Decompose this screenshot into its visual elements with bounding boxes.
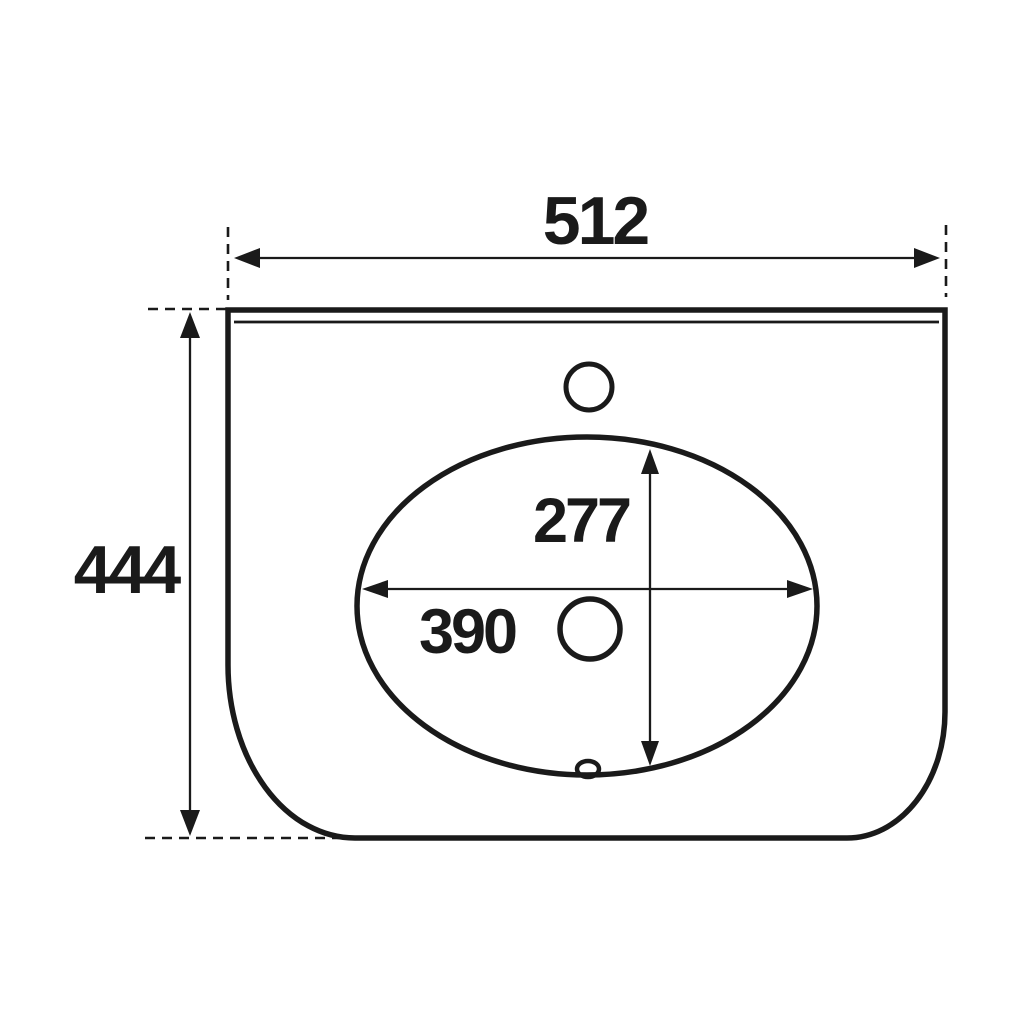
bowl-width-label: 390 [419,597,516,667]
arrowhead-down-icon [641,741,659,766]
arrowhead-up-icon [180,312,200,338]
arrowhead-left-icon [234,248,260,268]
bowl-width-dimension: 390 [362,580,813,667]
overall-depth-dimension: 444 [74,309,352,838]
basin-outline [228,310,945,838]
arrowhead-left-icon [362,580,388,598]
technical-drawing-canvas: 512 444 277 390 [0,0,1024,1024]
arrowhead-right-icon [787,580,813,598]
overall-depth-label: 444 [74,532,182,608]
bowl-depth-label: 277 [533,486,630,556]
overall-width-dimension: 512 [228,183,946,300]
tap-hole [566,364,612,410]
overall-width-label: 512 [543,183,649,259]
arrowhead-down-icon [180,810,200,836]
drain-hole [560,599,620,659]
bowl-depth-dimension: 277 [533,449,659,766]
basin-dimension-diagram: 512 444 277 390 [0,0,1024,1024]
arrowhead-right-icon [914,248,940,268]
arrowhead-up-icon [641,449,659,474]
